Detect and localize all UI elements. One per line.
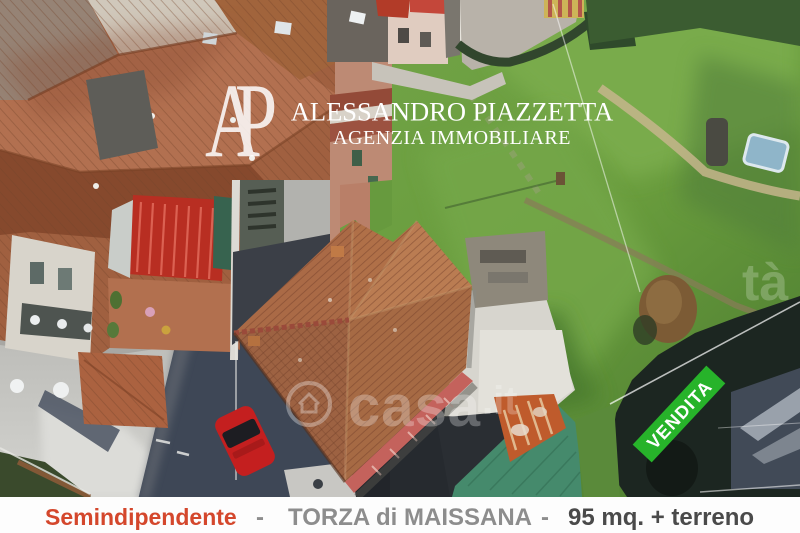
svg-text:AGENZIA IMMOBILIARE: AGENZIA IMMOBILIARE (333, 127, 571, 149)
svg-text:.it: .it (482, 379, 518, 423)
svg-text:casa: casa (348, 374, 481, 439)
svg-text:TORZA di MAISSANA: TORZA di MAISSANA (288, 504, 532, 531)
svg-text:95 mq. + terreno: 95 mq. + terreno (568, 504, 754, 531)
svg-text:Semindipendente: Semindipendente (45, 504, 237, 530)
svg-text:-: - (541, 504, 549, 531)
svg-text:ALESSANDRO PIAZZETTA: ALESSANDRO PIAZZETTA (291, 97, 614, 127)
svg-text:tà: tà (742, 254, 789, 312)
svg-text:-: - (256, 504, 264, 531)
